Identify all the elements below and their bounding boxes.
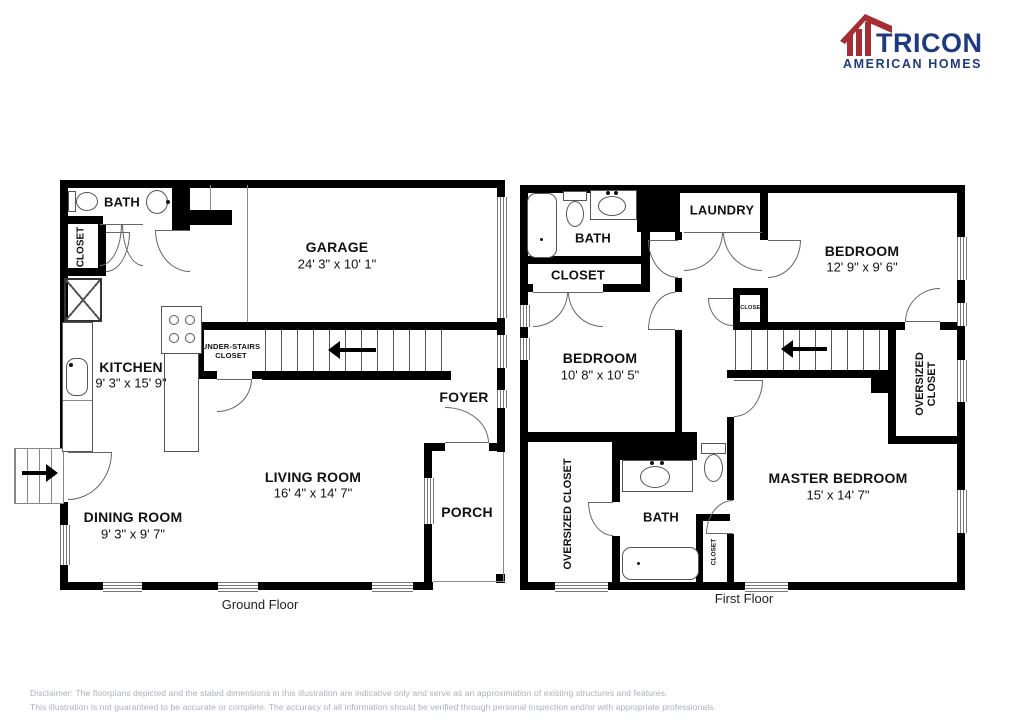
wall	[871, 370, 888, 393]
wall	[733, 322, 905, 330]
closet-doors-arc	[568, 292, 603, 327]
wall	[888, 436, 965, 444]
bedroom2-label: BEDROOM	[563, 350, 638, 366]
wall	[675, 232, 682, 240]
window	[957, 490, 967, 533]
small-closet-label: CLOSET	[740, 305, 764, 311]
window	[957, 303, 967, 326]
faucet-dot	[606, 191, 610, 195]
window	[957, 237, 967, 280]
master-bedroom-dims: 15' x 14' 7"	[806, 488, 869, 503]
first-floor-caption: First Floor	[715, 591, 774, 606]
bedroom1-label: BEDROOM	[825, 243, 900, 259]
wall	[637, 193, 680, 232]
bath-door-arc	[648, 240, 678, 278]
wall	[675, 278, 682, 292]
bedroom1-door-arc	[768, 240, 801, 278]
stairs-direction-arrow	[793, 347, 827, 351]
oversized-closet-right-label: OVERSIZED CLOSET	[914, 346, 938, 422]
wall	[733, 288, 768, 295]
faucet-dot	[650, 461, 654, 465]
oversized-left-door-arc	[588, 502, 613, 536]
window	[520, 305, 530, 327]
toilet-bowl	[566, 201, 584, 227]
bathtub	[527, 193, 557, 258]
closet-top-label: CLOSET	[551, 268, 605, 283]
toilet-bowl	[704, 454, 723, 482]
floorplan-page: TRICON AMERICAN HOMES	[0, 0, 1024, 724]
laundry-label: LAUNDRY	[690, 203, 754, 218]
toilet-tank	[701, 443, 726, 454]
wall	[727, 417, 734, 500]
bedroom2-dims: 10' 8" x 10' 5"	[561, 368, 640, 383]
bedroom1-dims: 12' 9" x 9' 6"	[826, 260, 897, 275]
master-bath-door-arc	[706, 500, 733, 534]
oversized-closet-left-label: OVERSIZED CLOSET	[562, 458, 574, 569]
wall	[612, 440, 620, 502]
wall	[727, 534, 734, 583]
closet-doors-arc	[533, 292, 568, 327]
window	[520, 338, 530, 360]
bathtub	[622, 547, 699, 580]
disclaimer-line2: This illustration is not guaranteed to b…	[30, 702, 716, 712]
faucet-dot	[660, 461, 664, 465]
window	[957, 360, 967, 402]
laundry-doors-arc	[723, 232, 762, 271]
wall	[520, 284, 533, 292]
wall	[888, 330, 896, 444]
master-bedroom-label: MASTER BEDROOM	[769, 470, 908, 486]
small-closet-door-arc	[708, 298, 733, 326]
wall	[615, 440, 697, 460]
bath-top-label: BATH	[575, 231, 611, 246]
bath-bottom-label: BATH	[643, 510, 679, 525]
drain-dot	[637, 562, 640, 565]
oversized-right-door-arc	[905, 288, 940, 322]
sink-basin	[598, 196, 626, 216]
laundry-doors-arc	[684, 232, 723, 271]
drain-dot	[540, 238, 543, 241]
wall	[612, 536, 620, 583]
window	[555, 582, 608, 592]
stairs-base-wall	[727, 370, 888, 378]
faucet-dot	[614, 191, 618, 195]
wall	[675, 330, 682, 432]
sink-basin	[640, 466, 670, 488]
first-floor-plan: BATH CLOSET LAUNDRY BEDROOM 12' 9" x 9' …	[0, 0, 1024, 724]
master-door-arc	[734, 380, 763, 417]
closet-bottom-label: CLOSET	[711, 539, 718, 565]
disclaimer-line1: Disclaimer: The floorplans depicted and …	[30, 688, 668, 698]
toilet-tank	[563, 191, 587, 201]
bedroom2-door-arc	[648, 292, 675, 330]
